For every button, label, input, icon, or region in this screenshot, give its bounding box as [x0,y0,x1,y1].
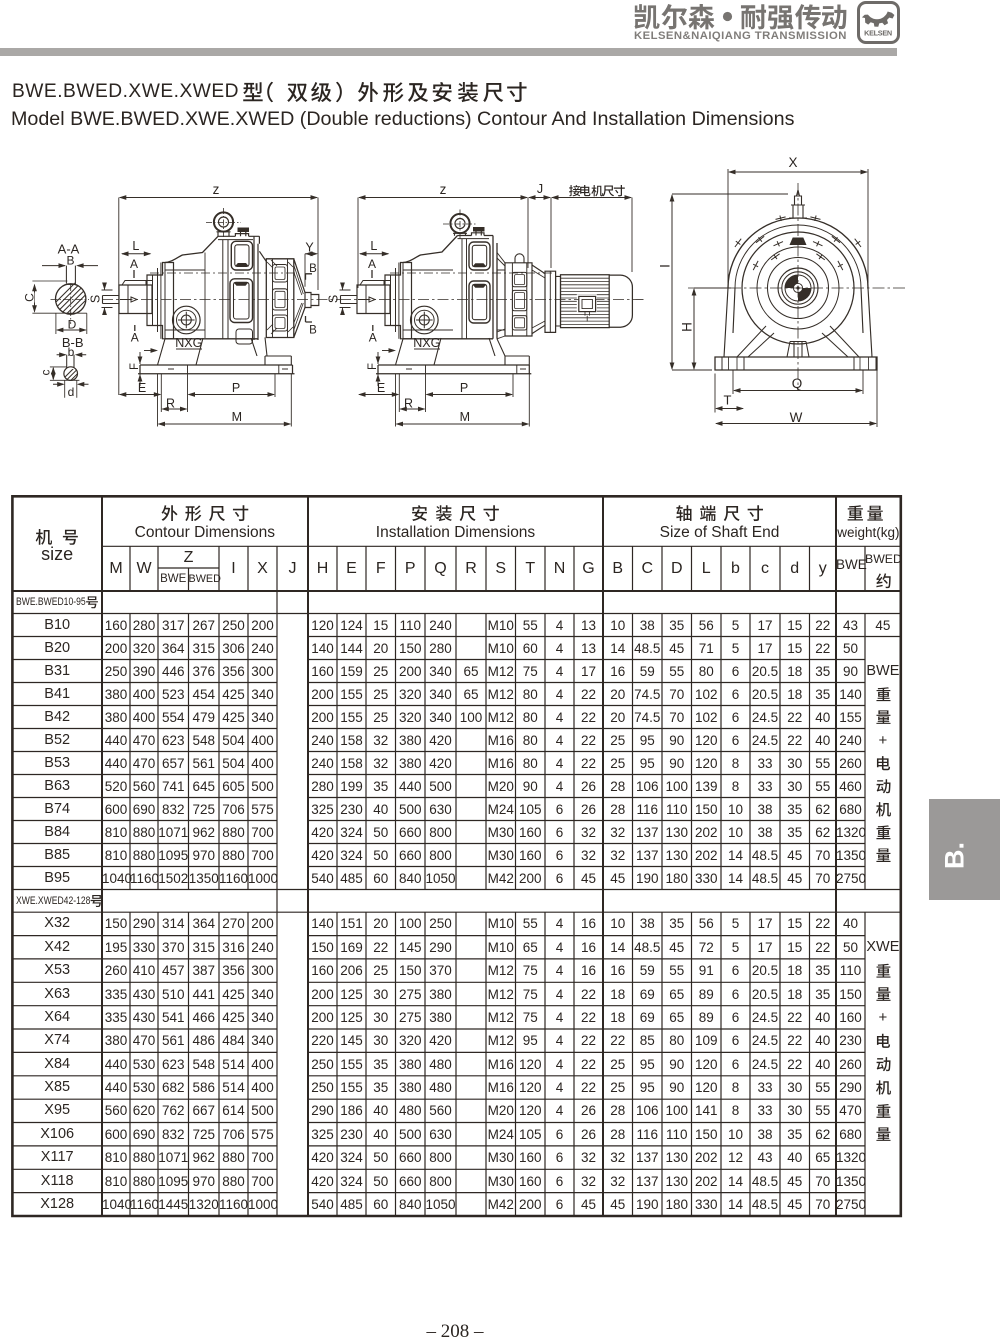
svg-text:c: c [38,370,52,376]
svg-text:R: R [404,396,413,410]
svg-text:NXG: NXG [175,336,202,350]
svg-text:B: B [309,263,317,275]
svg-text:NXG: NXG [413,336,440,350]
svg-text:I: I [657,264,672,268]
svg-text:P: P [232,381,240,395]
svg-text:B: B [66,253,74,267]
svg-text:E: E [138,381,146,395]
svg-text:F: F [129,363,141,370]
svg-text:B: B [309,324,317,336]
svg-text:A: A [369,330,377,344]
svg-text:R: R [166,396,175,410]
svg-text:M: M [232,410,242,424]
svg-text:D: D [68,318,77,332]
svg-text:A: A [130,257,138,271]
svg-text:C: C [22,293,36,302]
svg-text:E: E [377,381,385,395]
svg-text:J: J [537,182,543,196]
svg-text:d: d [68,385,75,399]
svg-text:Q: Q [792,376,803,391]
svg-text:A: A [131,330,139,344]
svg-text:H: H [679,322,694,332]
svg-text:A: A [368,257,376,271]
svg-text:X: X [788,155,797,170]
svg-text:T: T [724,392,732,407]
svg-text:z: z [213,182,220,197]
svg-text:P: P [460,381,468,395]
svg-text:L: L [370,239,377,253]
svg-text:S: S [326,295,340,303]
svg-text:S: S [88,295,102,303]
svg-text:L: L [132,239,139,253]
svg-text:z: z [440,182,447,197]
svg-text:W: W [790,410,803,425]
svg-text:M: M [460,410,470,424]
svg-text:F: F [367,363,379,370]
